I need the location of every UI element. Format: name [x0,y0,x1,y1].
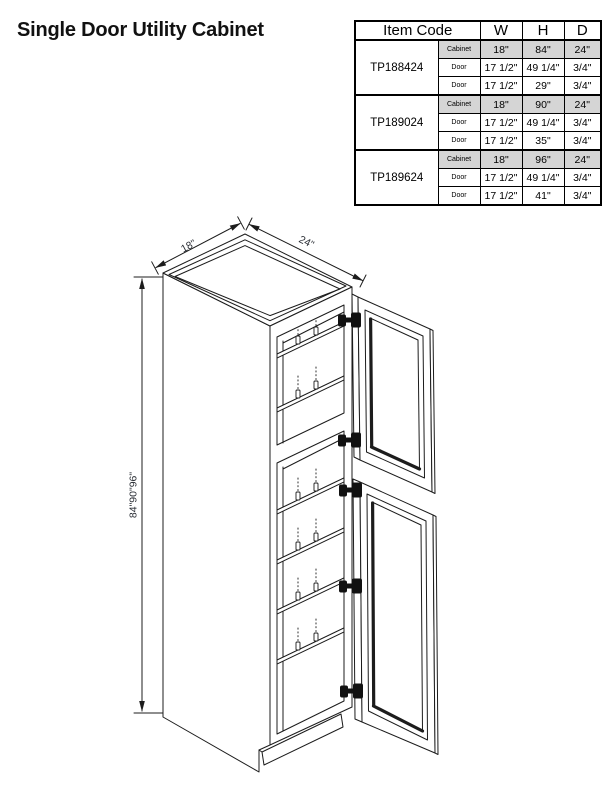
cabinet-isometric-drawing: 18" 24" 84"90"96" [0,0,615,787]
dimension-label-depth: 18" [179,237,198,255]
dimension-label-width: 24" [297,234,316,252]
lower-door [353,479,438,755]
upper-door [352,294,435,494]
dimension-label-height: 84"90"96" [128,472,140,518]
spec-sheet-page: { "page": { "title": "Single Door Utilit… [0,0,615,787]
cabinet-side-panel [163,273,270,772]
